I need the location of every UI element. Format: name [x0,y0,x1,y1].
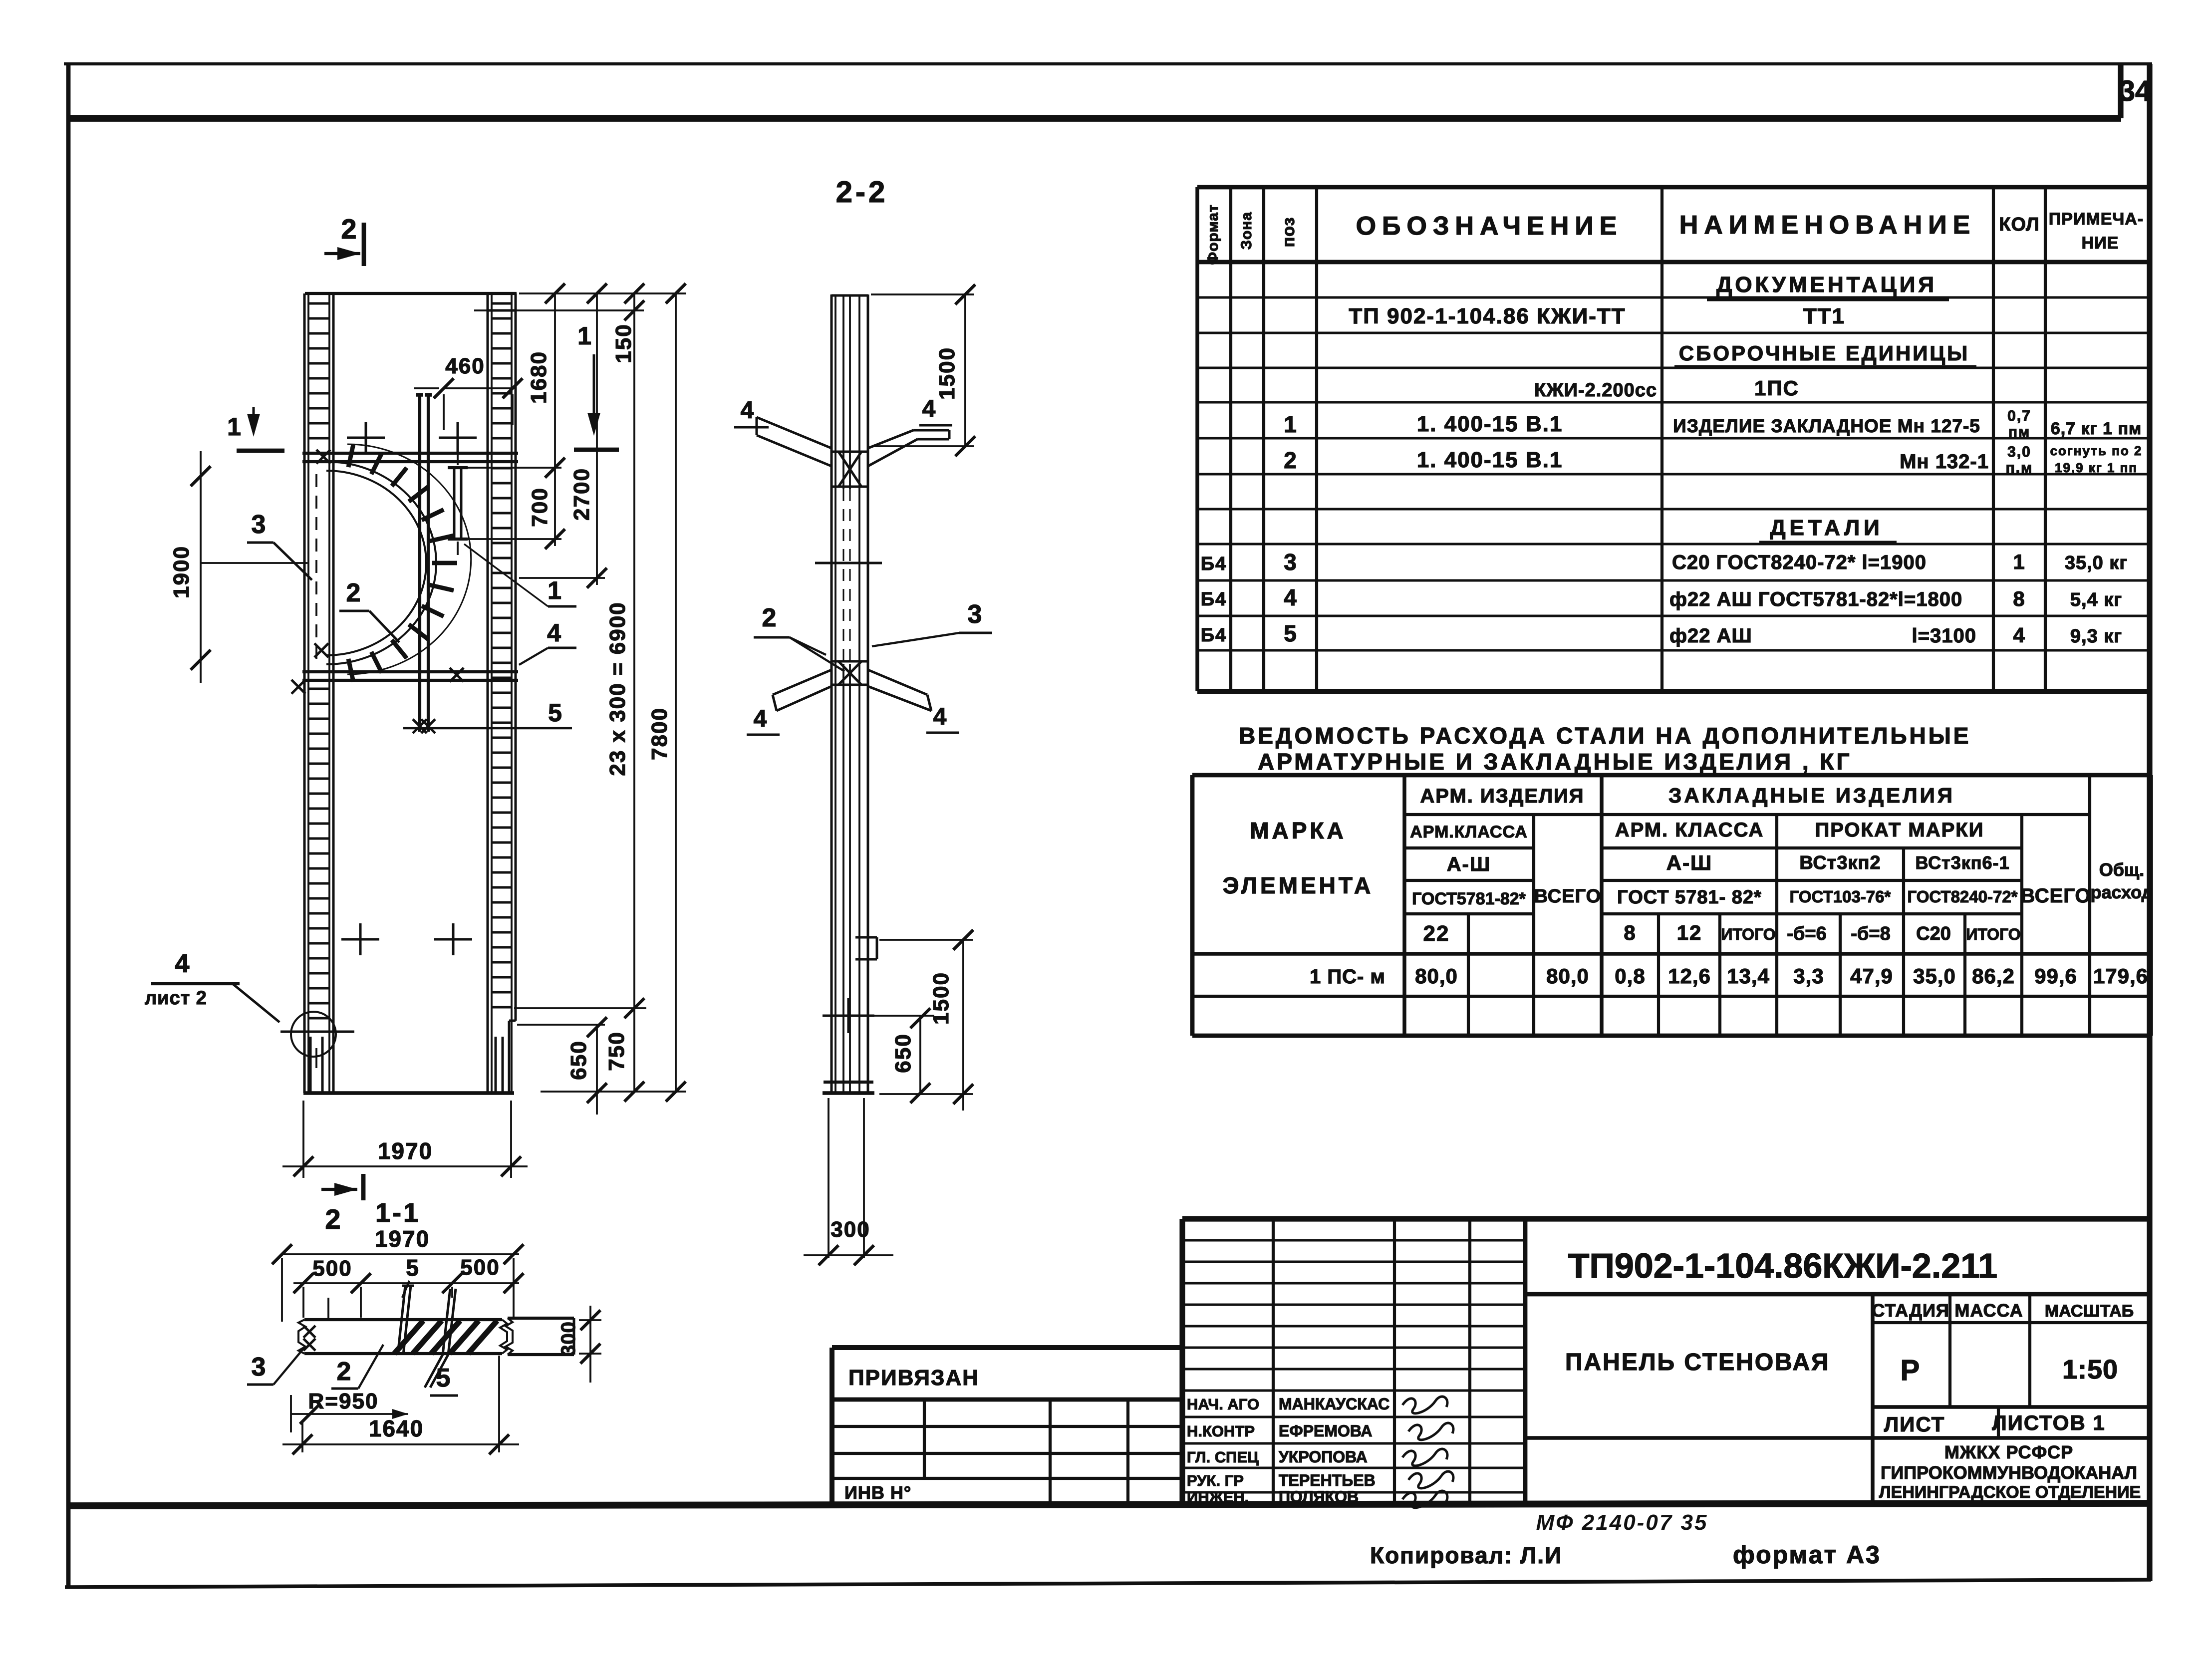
svg-text:35,0 кг: 35,0 кг [2065,553,2128,573]
svg-text:6,7 кг 1 пм: 6,7 кг 1 пм [2051,419,2142,438]
svg-text:86,2: 86,2 [1972,964,2015,988]
svg-text:ИТОГО: ИТОГО [1721,925,1775,943]
svg-text:Б4: Б4 [1201,625,1227,646]
svg-text:9,3 кг: 9,3 кг [2070,626,2122,647]
svg-text:ВСЕГО: ВСЕГО [1534,886,1601,907]
svg-text:2: 2 [762,603,778,632]
svg-text:4: 4 [754,706,768,732]
svg-text:1:50: 1:50 [2062,1355,2118,1385]
svg-text:1: 1 [548,576,562,604]
svg-text:3,0: 3,0 [2007,444,2031,460]
svg-text:согнуть по 2: согнуть по 2 [2050,443,2143,458]
svg-text:700: 700 [528,487,552,527]
svg-text:ЗАКЛАДНЫЕ ИЗДЕЛИЯ: ЗАКЛАДНЫЕ ИЗДЕЛИЯ [1668,784,1955,807]
svg-text:3: 3 [968,600,983,629]
svg-text:1 ПС- м: 1 ПС- м [1310,966,1385,988]
svg-text:5: 5 [436,1364,452,1393]
svg-text:МАССА: МАССА [1954,1300,2023,1321]
svg-text:ПРИМЕЧА-: ПРИМЕЧА- [2049,210,2144,229]
svg-text:п.м: п.м [2006,460,2033,476]
svg-text:С20 ГОСТ8240-72* l=1900: С20 ГОСТ8240-72* l=1900 [1672,552,1927,573]
svg-text:4: 4 [547,619,562,647]
svg-text:ГОСТ5781-82*: ГОСТ5781-82* [1412,889,1526,908]
svg-text:МАНКАУСКАС: МАНКАУСКАС [1279,1395,1389,1413]
svg-text:23 х 300 = 6900: 23 х 300 = 6900 [605,601,630,776]
svg-text:2: 2 [341,213,357,245]
svg-text:34: 34 [2119,75,2152,107]
svg-text:ВСт3кп2: ВСт3кп2 [1799,852,1881,873]
svg-text:4: 4 [1284,584,1298,610]
svg-text:3,3: 3,3 [1793,964,1824,988]
svg-text:3: 3 [252,510,267,539]
svg-text:35,0: 35,0 [1913,964,1956,988]
svg-text:ЛЕНИНГРАДСКОЕ ОТДЕЛЕНИЕ: ЛЕНИНГРАДСКОЕ ОТДЕЛЕНИЕ [1879,1483,2141,1502]
svg-text:3: 3 [252,1353,267,1382]
svg-text:СБОРОЧНЫЕ ЕДИНИЦЫ: СБОРОЧНЫЕ ЕДИНИЦЫ [1679,341,1969,365]
svg-text:80,0: 80,0 [1546,964,1589,988]
svg-text:ЭЛЕМЕНТА: ЭЛЕМЕНТА [1223,872,1374,898]
svg-text:1640: 1640 [369,1415,424,1441]
svg-text:ТП902-1-104.86КЖИ-2.211: ТП902-1-104.86КЖИ-2.211 [1568,1246,1997,1285]
svg-text:R=950: R=950 [308,1389,379,1413]
svg-text:Б4: Б4 [1201,554,1227,574]
svg-text:ЕФРЕМОВА: ЕФРЕМОВА [1279,1422,1373,1440]
svg-text:150: 150 [611,323,636,363]
svg-text:1: 1 [227,413,242,441]
svg-text:поз: поз [1279,217,1298,248]
svg-text:2-2: 2-2 [836,175,888,209]
svg-text:5: 5 [1284,620,1298,646]
svg-text:ЛИСТОВ 1: ЛИСТОВ 1 [1992,1411,2106,1434]
svg-text:300: 300 [830,1217,870,1242]
svg-text:47,9: 47,9 [1850,964,1893,988]
svg-text:4: 4 [933,704,948,730]
svg-text:ГОСТ103-76*: ГОСТ103-76* [1790,887,1891,906]
svg-text:1: 1 [2013,550,2025,573]
svg-text:расход: расход [2090,882,2153,902]
svg-text:2: 2 [346,578,362,607]
svg-text:ДОКУМЕНТАЦИЯ: ДОКУМЕНТАЦИЯ [1716,273,1937,297]
svg-text:ф22 АШ: ф22 АШ [1669,625,1752,647]
svg-text:ИНВ Н°: ИНВ Н° [844,1482,911,1503]
svg-text:1ПС: 1ПС [1754,376,1799,400]
svg-text:650: 650 [891,1033,915,1073]
svg-text:7800: 7800 [647,707,672,760]
svg-text:2: 2 [325,1203,341,1235]
svg-text:НАИМЕНОВАНИЕ: НАИМЕНОВАНИЕ [1679,211,1976,240]
svg-text:Б4: Б4 [1201,589,1227,610]
svg-text:5: 5 [548,699,563,727]
svg-text:АРМАТУРНЫЕ И ЗАКЛАДНЫЕ ИЗ: АРМАТУРНЫЕ И ЗАКЛАДНЫЕ ИЗДЕЛИЯ , КГ [1258,749,1852,775]
svg-text:650: 650 [566,1040,591,1080]
svg-text:12: 12 [1677,921,1702,944]
svg-text:ПРИВЯЗАН: ПРИВЯЗАН [848,1366,979,1390]
svg-text:5,4 кг: 5,4 кг [2070,589,2122,610]
svg-text:лист 2: лист 2 [145,988,207,1009]
svg-text:ГИПРОКОММУНВОДОКАНАЛ: ГИПРОКОММУНВОДОКАНАЛ [1881,1462,2137,1483]
svg-text:99,6: 99,6 [2034,964,2077,988]
svg-text:5: 5 [406,1255,420,1281]
svg-text:19,9 кг 1 пп: 19,9 кг 1 пп [2055,460,2138,475]
svg-text:ВЕДОМОСТЬ РАСХОДА СТАЛИ НА: ВЕДОМОСТЬ РАСХОДА СТАЛИ НА ДОПОЛНИТЕЛЬНЫ… [1239,723,1971,749]
svg-text:АРМ.КЛАССА: АРМ.КЛАССА [1410,823,1528,841]
svg-text:22: 22 [1423,921,1450,946]
svg-text:4: 4 [2013,623,2025,647]
svg-text:1680: 1680 [527,351,551,404]
svg-text:3: 3 [1284,549,1298,575]
svg-text:АРМ. КЛАССА: АРМ. КЛАССА [1615,819,1764,841]
svg-text:ТП 902-1-104.86 КЖИ-ТТ: ТП 902-1-104.86 КЖИ-ТТ [1349,304,1626,328]
svg-text:500: 500 [460,1255,500,1280]
svg-text:12,6: 12,6 [1668,964,1711,988]
svg-text:КОЛ: КОЛ [1999,214,2039,235]
svg-text:МФ 2140-07 35: МФ 2140-07 35 [1536,1510,1708,1535]
svg-text:А-Ш: А-Ш [1666,851,1713,874]
svg-text:Общ.: Общ. [2099,859,2145,880]
svg-text:2: 2 [1284,447,1298,473]
svg-text:ИТОГО: ИТОГО [1966,925,2020,943]
svg-text:80,0: 80,0 [1415,964,1458,988]
svg-text:1500: 1500 [935,347,959,400]
svg-text:АРМ. ИЗДЕЛИЯ: АРМ. ИЗДЕЛИЯ [1420,785,1584,807]
svg-text:ПАНЕЛЬ СТЕНОВАЯ: ПАНЕЛЬ СТЕНОВАЯ [1565,1349,1830,1376]
svg-text:179,6: 179,6 [2093,964,2148,988]
svg-text:1: 1 [1284,411,1298,437]
svg-text:1: 1 [577,322,592,350]
svg-text:ГОСТ 5781- 82*: ГОСТ 5781- 82* [1617,887,1762,908]
svg-text:460: 460 [445,354,485,378]
svg-text:8: 8 [1624,921,1636,944]
svg-text:ИНЖЕН.: ИНЖЕН. [1187,1488,1249,1506]
svg-text:СТАДИЯ: СТАДИЯ [1872,1300,1949,1321]
svg-text:Зона: Зона [1238,212,1255,250]
svg-text:0,8: 0,8 [1615,964,1645,988]
svg-text:2: 2 [337,1357,352,1386]
svg-text:НАЧ. АГО: НАЧ. АГО [1187,1396,1259,1413]
svg-text:ГЛ. СПЕЦ: ГЛ. СПЕЦ [1187,1448,1259,1466]
svg-text:Р: Р [1901,1354,1921,1387]
svg-text:750: 750 [604,1031,629,1071]
svg-text:8: 8 [2013,587,2025,610]
svg-text:КЖИ-2.200сс: КЖИ-2.200сс [1534,380,1657,401]
svg-text:ЛИСТ: ЛИСТ [1884,1412,1945,1436]
svg-text:1. 400-15 В.1: 1. 400-15 В.1 [1417,448,1563,472]
svg-text:МАСШТАБ: МАСШТАБ [2045,1302,2134,1321]
svg-text:2700: 2700 [569,468,594,521]
svg-text:формат А3: формат А3 [1733,1541,1881,1569]
svg-text:ф22 АШ ГОСТ5781-82*l=1800: ф22 АШ ГОСТ5781-82*l=1800 [1669,588,1962,610]
svg-text:13,4: 13,4 [1727,964,1770,988]
svg-text:4: 4 [741,397,755,424]
svg-text:Формат: Формат [1205,204,1221,265]
svg-text:ТЕРЕНТЬЕВ: ТЕРЕНТЬЕВ [1279,1471,1376,1489]
svg-text:ПРОКАТ МАРКИ: ПРОКАТ МАРКИ [1815,819,1984,841]
svg-text:ПОЛЯКОВ: ПОЛЯКОВ [1279,1488,1359,1506]
svg-text:-б=8: -б=8 [1851,923,1890,944]
svg-text:1970: 1970 [375,1226,430,1252]
svg-text:ДЕТАЛИ: ДЕТАЛИ [1770,516,1884,540]
svg-text:ВСт3кп6-1: ВСт3кп6-1 [1915,852,2009,873]
svg-text:А-Ш: А-Ш [1447,853,1491,875]
svg-text:ОБОЗНАЧЕНИЕ: ОБОЗНАЧЕНИЕ [1356,212,1623,241]
svg-text:НИЕ: НИЕ [2082,234,2119,253]
svg-text:МЖКХ РСФСР: МЖКХ РСФСР [1944,1442,2073,1462]
svg-text:Н.КОНТР: Н.КОНТР [1187,1422,1255,1440]
svg-text:4: 4 [175,949,191,978]
svg-text:1-1: 1-1 [375,1198,420,1228]
svg-text:1970: 1970 [378,1138,433,1164]
svg-text:ТТ1: ТТ1 [1803,304,1845,328]
svg-text:1500: 1500 [929,972,953,1025]
svg-text:-б=6: -б=6 [1787,923,1826,944]
svg-text:Мн 132-1: Мн 132-1 [1900,451,1989,473]
svg-text:500: 500 [312,1256,352,1281]
svg-text:Копировал: Л.И: Копировал: Л.И [1370,1542,1562,1568]
svg-text:l=3100: l=3100 [1912,625,1976,647]
svg-text:ВСЕГО: ВСЕГО [2020,885,2091,907]
svg-text:1. 400-15 В.1: 1. 400-15 В.1 [1417,412,1563,436]
svg-text:ГОСТ8240-72*: ГОСТ8240-72* [1907,887,2017,906]
svg-text:1900: 1900 [169,546,194,598]
svg-text:300: 300 [557,1321,579,1356]
svg-text:пм: пм [2008,424,2030,440]
svg-text:РУК. ГР: РУК. ГР [1187,1472,1244,1489]
svg-text:С20: С20 [1916,923,1951,944]
svg-text:МАРКА: МАРКА [1250,818,1347,843]
svg-text:ИЗДЕЛИЕ ЗАКЛАДНОЕ Мн 127-5: ИЗДЕЛИЕ ЗАКЛАДНОЕ Мн 127-5 [1673,416,1980,436]
svg-text:0,7: 0,7 [2007,408,2031,424]
svg-text:УКРОПОВА: УКРОПОВА [1279,1448,1368,1466]
